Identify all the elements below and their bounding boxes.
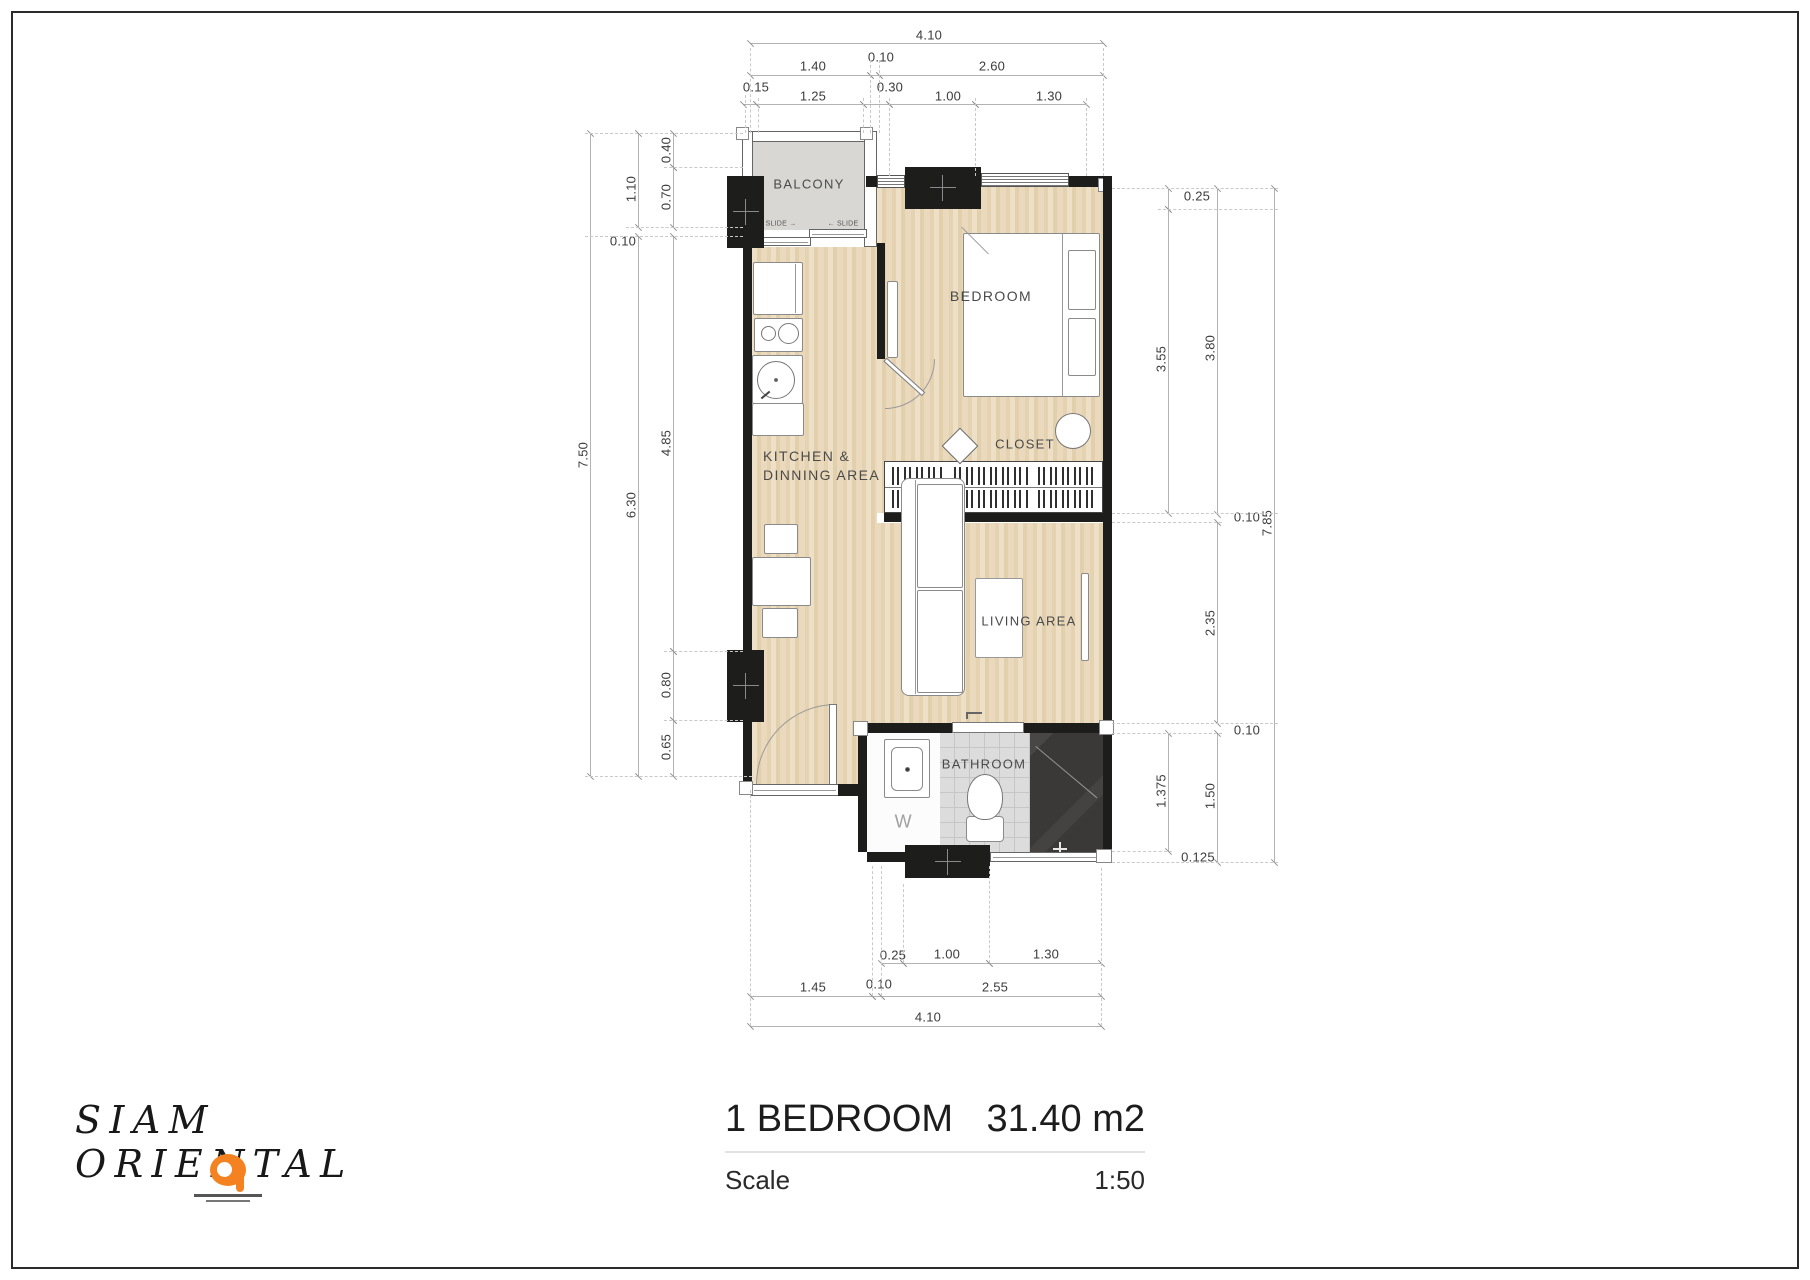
dim-line [889,104,975,105]
dim-line [1217,733,1218,862]
extension-line [1158,209,1278,210]
dimension-label: 0.80 [659,672,674,698]
dim-line [673,720,674,776]
dimension-label: 4.10 [916,28,942,43]
extension-line [585,133,743,134]
column [727,650,764,722]
door-handle-icon [966,712,982,714]
dim-line [1274,188,1275,862]
floor-plan-sheet: { "brand": { "name": "SIAM ORIENTAL", "l… [0,0,1810,1280]
dimension-label: 0.10 [1234,723,1260,738]
bed-headboard-line [1062,234,1063,396]
dimension-label: 0.10 [866,977,892,992]
dim-line [590,133,591,776]
toilet-bowl [967,774,1003,820]
title-block: 1 BEDROOM 31.40 m2 Scale 1:50 [725,1098,1145,1196]
dimension-label: 2.55 [982,980,1008,995]
dining-table [752,557,811,606]
dimension-label: 1.30 [1033,947,1059,962]
dim-line [879,75,1103,76]
dim-line [881,963,903,964]
dimension-label: 1.10 [624,176,639,202]
logo-caption-bar [206,1200,250,1202]
extension-line [745,95,746,133]
bathroom-bottom-wall [867,852,905,862]
logo-caption-bar [194,1194,262,1197]
dimension-label: 3.55 [1154,346,1169,372]
dimension-label: 0.10 [868,50,894,65]
extension-line [1086,98,1087,176]
dim-line [1217,188,1218,514]
bathroom-window-sill [990,852,1103,862]
bathroom-door-leaf [952,722,1024,733]
room-label: LIVING AREA [981,614,1076,629]
room-label: W [895,812,914,833]
dimension-label: 1.375 [1154,774,1169,808]
hangers-icon [954,490,1028,508]
extension-line [758,98,759,133]
extension-line [1112,723,1278,724]
dimension-label: 0.70 [659,184,674,210]
bedroom-divider-wall [877,243,885,359]
hangers-icon [1038,490,1094,508]
dimension-label: 1.40 [800,59,826,74]
door-handle-icon [966,712,968,719]
room-label: BALCONY [773,177,844,192]
dimension-label: 1.00 [935,89,961,104]
dining-chair [764,524,798,554]
room-label: CLOSET [995,437,1055,452]
extension-line [903,884,904,963]
bathroom-left-wall [858,733,867,852]
dim-line [989,963,1101,964]
dim-line [756,104,863,105]
extension-line [1103,48,1104,176]
extension-line [1112,513,1278,514]
pillow [1068,318,1096,376]
pillow [1068,250,1096,310]
dim-line [750,996,872,997]
dim-line [673,236,674,651]
extension-line [664,167,743,168]
dim-line [750,75,870,76]
dim-line [881,996,1101,997]
extension-line [585,776,752,777]
wall-joint [853,721,868,736]
brand-name: SIAM ORIENTAL [75,1098,435,1186]
extension-line [863,98,864,133]
dim-line [673,167,674,227]
basin-drain-dot [905,767,910,772]
dimension-label: 0.40 [659,137,674,163]
extension-line [585,236,743,237]
extension-line [1112,188,1278,189]
dimension-label: 0.15 [743,80,769,95]
dim-line [750,43,1103,44]
dim-line [673,133,674,167]
entrance-threshold [751,784,839,796]
architect-logo-icon [210,1154,250,1188]
dim-line [1168,209,1169,513]
extension-line [1112,862,1278,863]
logo-tail [236,1166,244,1192]
unit-area: 31.40 m2 [987,1098,1145,1141]
extension-line [664,651,743,652]
burner-icon [778,323,799,344]
title-separator [725,1151,1145,1153]
bathroom-window-column [905,845,990,878]
tv-console [1081,573,1089,661]
dimension-label: 7.50 [576,442,591,468]
logo-hole [217,1162,232,1177]
room-label: KITCHEN & [763,448,850,464]
extension-line [889,98,890,176]
hangers-icon [954,467,1028,485]
balcony-wall-top [742,131,874,142]
dining-chair [762,608,798,638]
dimension-label: 2.60 [979,59,1005,74]
extension-line [975,98,976,176]
dim-line [1217,522,1218,723]
column [905,167,981,209]
window [877,175,905,188]
extension-line [872,866,873,996]
dimension-label: 1.00 [934,947,960,962]
extension-line [989,866,990,963]
wall-joint [860,127,873,140]
stool [1055,413,1091,449]
slide-door-label: ← SLIDE [828,221,859,228]
extension-line [1112,733,1222,734]
right-wall [1103,176,1112,862]
sofa-cushion [917,590,963,693]
extension-line [626,227,743,228]
dimension-label: 0.30 [877,80,903,95]
floor-plan: 4.101.400.102.600.151.250.301.001.307.50… [0,0,1810,1280]
unit-type-title: 1 BEDROOM [725,1098,953,1141]
entrance-door-leaf [829,704,837,785]
extension-line [750,790,751,1026]
extension-line [750,48,751,133]
dim-line [638,133,639,227]
dim-line [638,236,639,776]
room-label: DINNING AREA [763,467,880,483]
extension-line [1112,522,1222,523]
bathroom-top-wall [868,723,952,733]
extension-line [881,866,882,996]
hangers-icon [1038,467,1094,485]
scale-label: Scale [725,1165,790,1196]
brand-block: SIAM ORIENTAL [75,1098,435,1186]
column [727,176,764,248]
dimension-label: 1.30 [1036,89,1062,104]
dimension-label: 3.80 [1203,335,1218,361]
dimension-label: 0.10 [1234,510,1260,525]
dimension-label: 1.45 [800,980,826,995]
dim-line [863,104,889,105]
extension-line [1112,851,1172,852]
dimension-label: 1.50 [1203,783,1218,809]
counter [752,403,804,436]
sofa-cushion [917,484,963,588]
sink-drain-dot [774,378,778,382]
wardrobe [887,281,898,358]
dimension-label: 4.10 [915,1010,941,1025]
dimension-label: 2.35 [1203,610,1218,636]
sofa-back-line [915,480,916,694]
dimension-label: 4.85 [659,430,674,456]
dimension-label: 6.30 [624,492,639,518]
dimension-label: 0.25 [1184,189,1210,204]
dim-line [903,963,989,964]
wall-joint [1096,849,1112,863]
extension-line [879,60,880,133]
bathroom-top-wall [1024,723,1103,733]
dim-line [1168,733,1169,851]
bedroom-window [981,173,1069,187]
dim-line [975,104,1086,105]
extension-line [870,60,871,133]
dim-line [750,1026,1101,1027]
fridge-door-line [795,264,796,313]
sliding-door-panel [809,229,867,238]
extension-line [1101,868,1102,1026]
room-label: BATHROOM [942,757,1027,772]
burner-icon [761,326,776,341]
extension-line [664,720,743,721]
slide-door-label: SLIDE → [766,221,797,228]
dimension-label: 0.65 [659,734,674,760]
dim-line [673,651,674,720]
room-label: BEDROOM [950,288,1032,304]
dimension-label: 1.25 [800,89,826,104]
scale-value: 1:50 [1094,1165,1145,1196]
dim-line [1168,188,1169,209]
